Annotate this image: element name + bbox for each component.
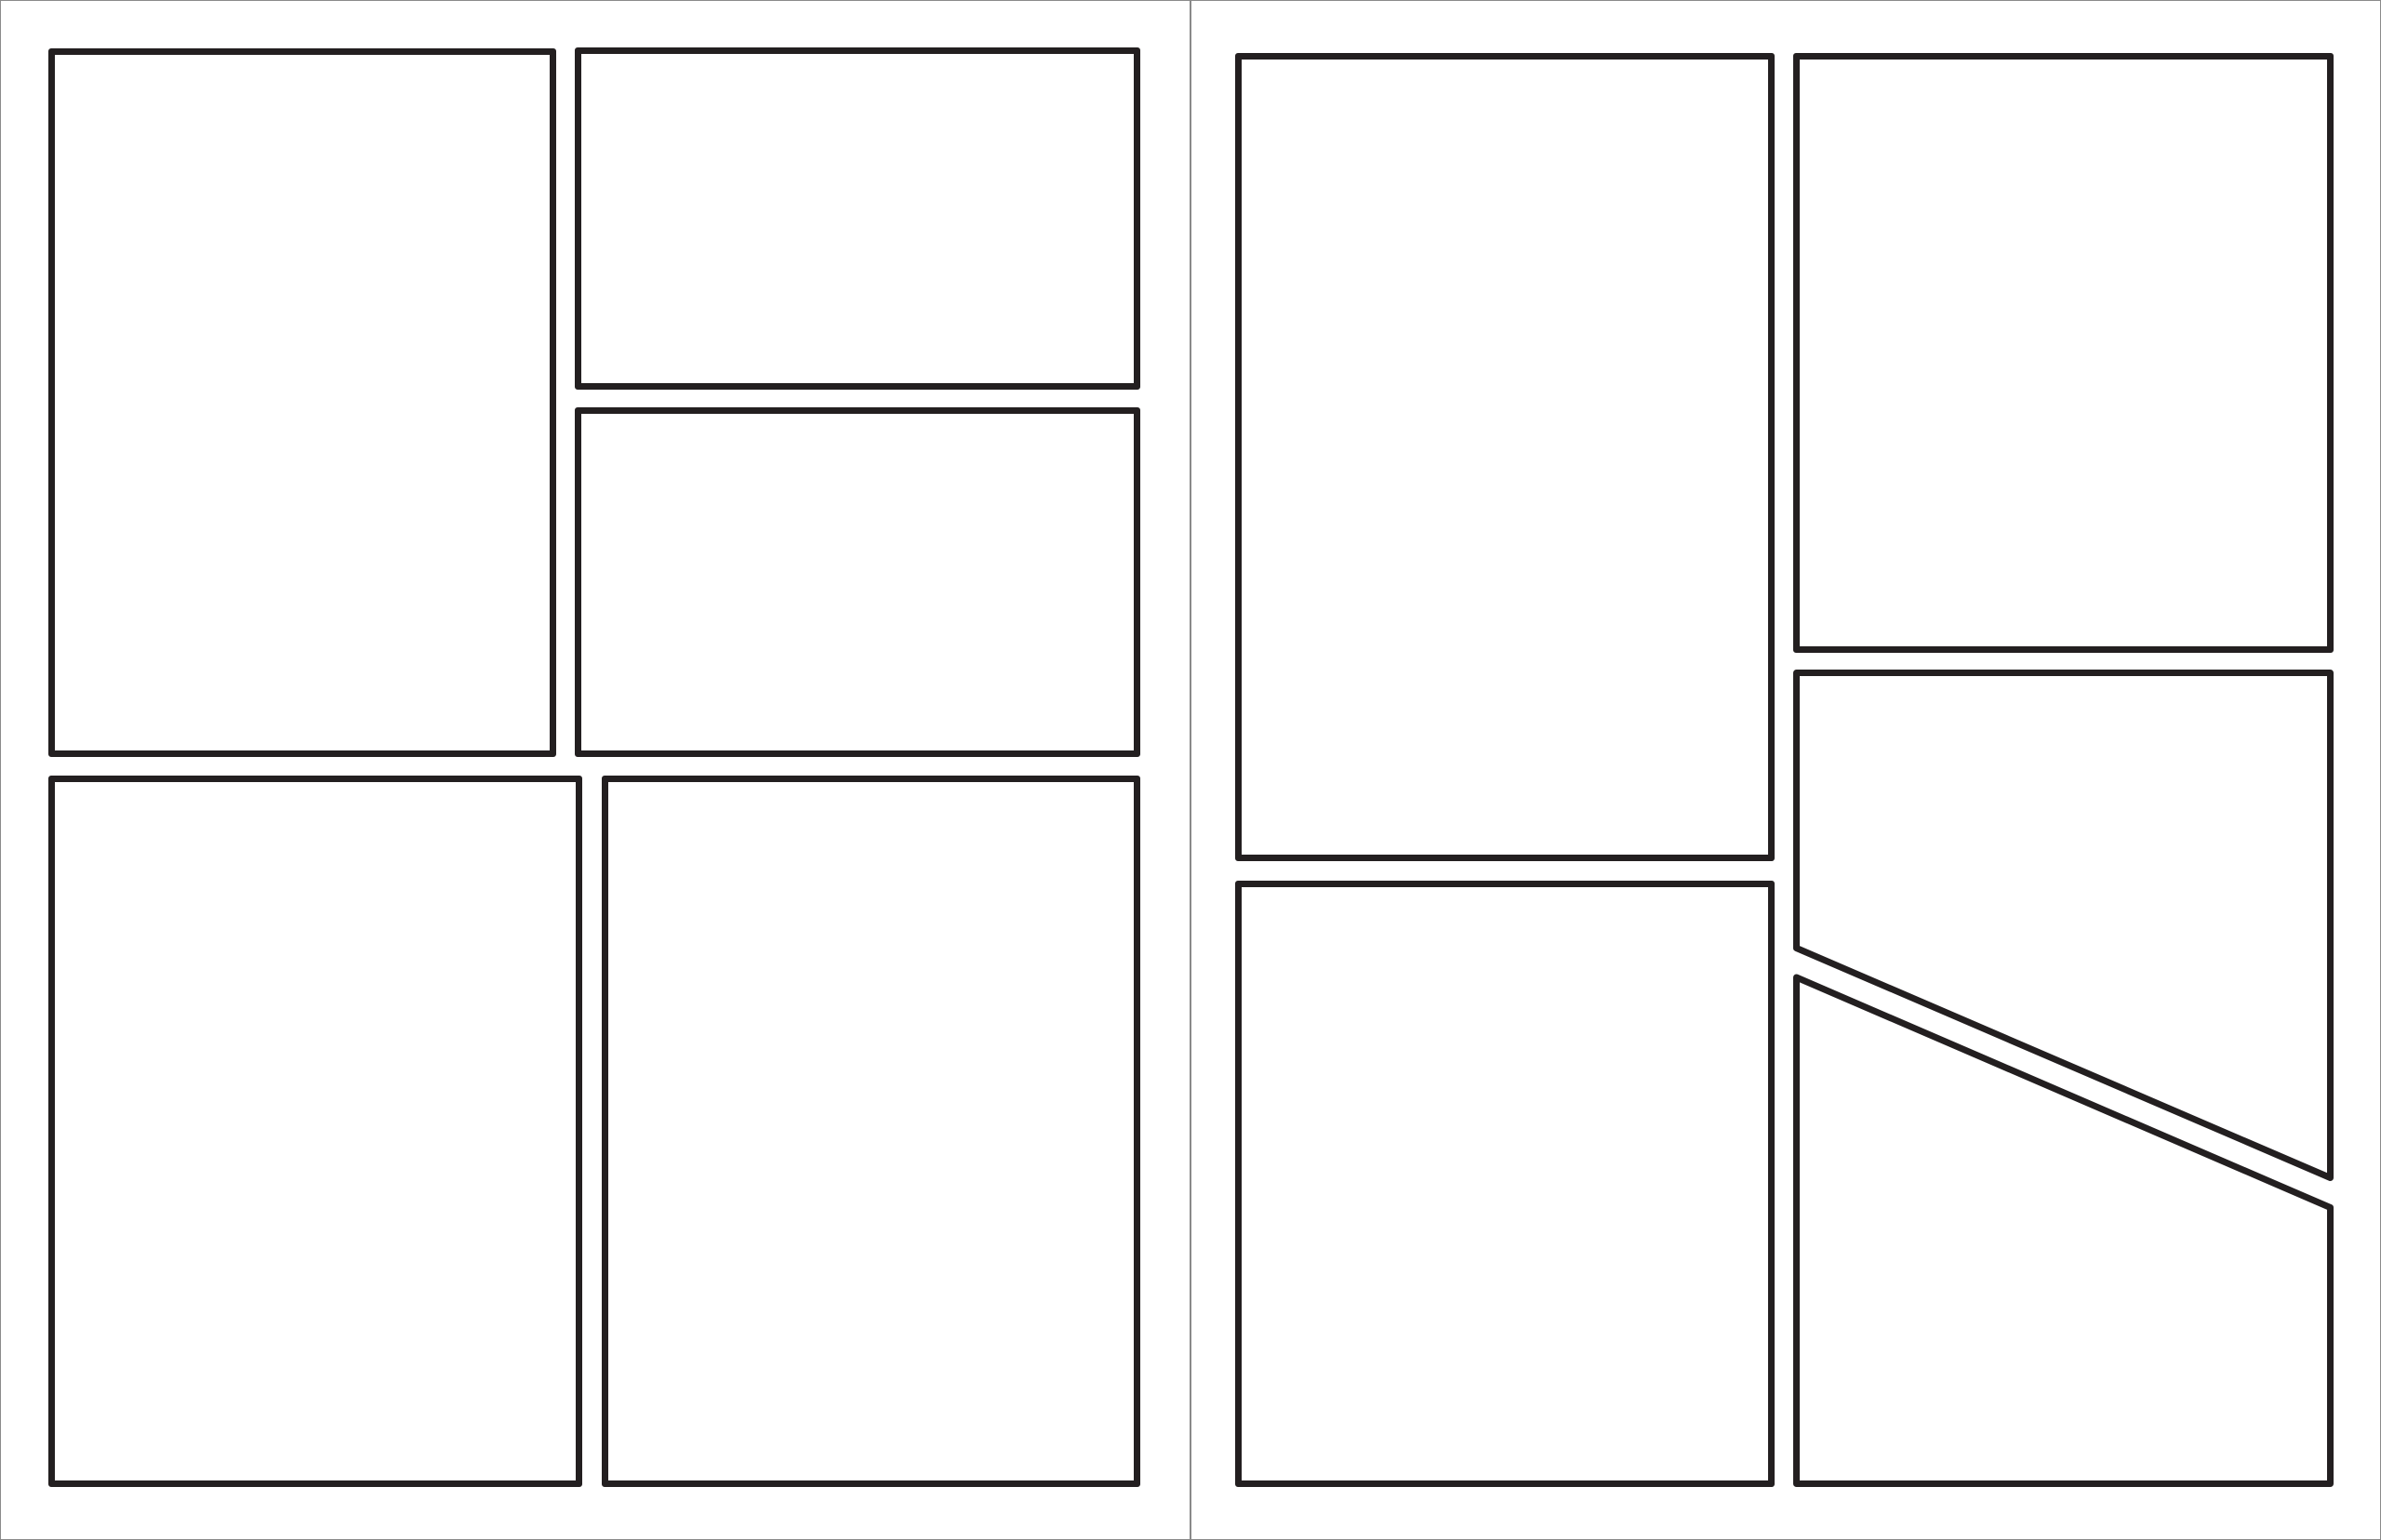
page-1-panel-5 [602, 776, 1140, 1487]
page-2-panel-2 [1235, 881, 1775, 1487]
comic-template-canvas [0, 0, 2381, 1540]
page-2-panel-3 [1793, 53, 2334, 653]
page-1-panel-4 [48, 776, 582, 1487]
page-1-panel-2 [575, 47, 1140, 390]
page-1-panel-1 [48, 48, 556, 757]
page-2-panel-1 [1235, 53, 1775, 861]
page-1-panel-3 [575, 407, 1140, 757]
